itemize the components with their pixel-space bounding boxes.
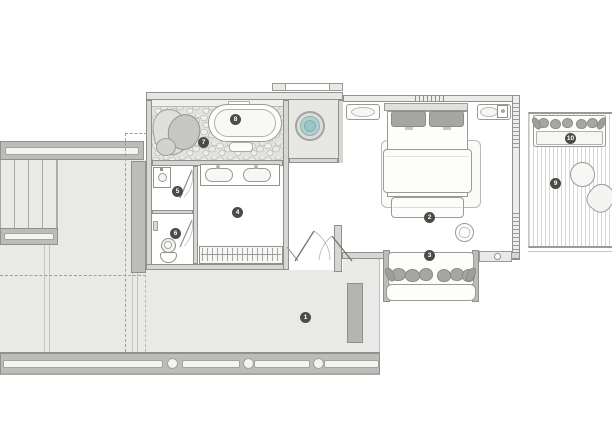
- marker-3: 3: [424, 250, 435, 261]
- marker-10: 10: [565, 133, 576, 144]
- marker-7: 7: [198, 137, 209, 148]
- door-swings-overlay: [0, 0, 612, 441]
- marker-2: 2: [424, 212, 435, 223]
- marker-6: 6: [170, 228, 181, 239]
- marker-1: 1: [300, 312, 311, 323]
- marker-4: 4: [232, 207, 243, 218]
- floor-plan-canvas: 1 2 3 4 5 6 7 8 9 10: [0, 0, 612, 441]
- marker-9: 9: [550, 178, 561, 189]
- marker-8: 8: [230, 114, 241, 125]
- marker-5: 5: [172, 186, 183, 197]
